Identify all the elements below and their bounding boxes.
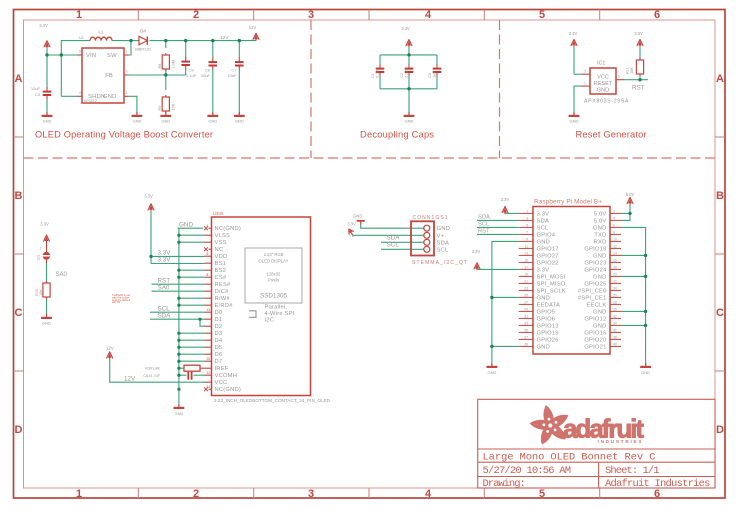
svg-text:CS#: CS# xyxy=(215,275,227,281)
svg-text:STEMMA_I2C_QT: STEMMA_I2C_QT xyxy=(412,260,467,266)
svg-text:3.3V: 3.3V xyxy=(40,221,49,226)
svg-text:D3: D3 xyxy=(215,331,223,337)
svg-text:9: 9 xyxy=(526,237,528,241)
svg-text:35: 35 xyxy=(524,328,528,332)
svg-text:3.3V: 3.3V xyxy=(634,31,643,36)
svg-text:3.3V: 3.3V xyxy=(39,23,48,28)
svg-text:R8: R8 xyxy=(158,64,162,69)
svg-text:Decoupling Caps: Decoupling Caps xyxy=(360,130,434,140)
svg-text:#SPI_CE0: #SPI_CE0 xyxy=(578,288,607,294)
svg-text:14: 14 xyxy=(613,251,617,255)
svg-text:15: 15 xyxy=(524,258,528,262)
svg-text:10K: 10K xyxy=(171,103,175,110)
svg-text:2.23_INCH_OLEDBOTTOM_CONTACT_2: 2.23_INCH_OLEDBOTTOM_CONTACT_24_PIN_OLED xyxy=(214,398,331,403)
svg-text:10uF: 10uF xyxy=(201,73,211,78)
svg-text:19: 19 xyxy=(524,272,528,276)
svg-text:GPIO16: GPIO16 xyxy=(584,330,606,336)
svg-text:1: 1 xyxy=(584,81,586,85)
svg-text:R11: R11 xyxy=(626,67,630,74)
svg-text:Large Mono OLED Bonnet Rev C: Large Mono OLED Bonnet Rev C xyxy=(483,451,656,463)
svg-text:D: D xyxy=(716,424,724,436)
svg-text:2: 2 xyxy=(126,91,128,95)
svg-text:38: 38 xyxy=(613,335,617,339)
svg-text:3.3V: 3.3V xyxy=(501,197,510,202)
svg-text:29: 29 xyxy=(524,307,528,311)
svg-text:adr 7D: adr 7D xyxy=(112,300,120,304)
svg-text:V+: V+ xyxy=(437,233,445,239)
svg-text:GND: GND xyxy=(641,370,650,375)
svg-text:10K: 10K xyxy=(630,67,634,74)
svg-text:U1: U1 xyxy=(79,36,84,40)
svg-text:B: B xyxy=(15,190,23,202)
svg-text:APX803S-29SA: APX803S-29SA xyxy=(584,99,629,105)
svg-text:R391.8K: R391.8K xyxy=(145,367,160,371)
svg-text:Raspberry Pi Model B+: Raspberry Pi Model B+ xyxy=(534,199,602,206)
svg-text:GPIO25: GPIO25 xyxy=(584,281,606,287)
svg-text:GND: GND xyxy=(537,239,550,245)
svg-text:SW: SW xyxy=(107,53,117,59)
svg-text:10: 10 xyxy=(613,237,617,241)
svg-text:0.1uF: 0.1uF xyxy=(375,68,379,78)
svg-text:OLED DISPLAY: OLED DISPLAY xyxy=(259,259,289,264)
svg-text:GPIO17: GPIO17 xyxy=(537,246,559,252)
svg-text:VSS: VSS xyxy=(215,240,227,246)
svg-text:VCOMH: VCOMH xyxy=(215,373,238,379)
svg-text:1: 1 xyxy=(207,224,209,228)
svg-text:24: 24 xyxy=(207,385,211,389)
svg-text:GPIO24: GPIO24 xyxy=(584,267,607,273)
svg-text:3.3V: 3.3V xyxy=(537,267,550,273)
svg-text:12V: 12V xyxy=(220,35,229,41)
svg-text:2: 2 xyxy=(618,75,620,79)
svg-text:A: A xyxy=(716,73,724,85)
svg-text:BS2: BS2 xyxy=(215,268,227,274)
svg-text:B: B xyxy=(716,190,724,202)
svg-text:C: C xyxy=(15,307,23,319)
svg-text:D4: D4 xyxy=(140,29,146,34)
svg-text:5: 5 xyxy=(207,252,209,256)
svg-text:1: 1 xyxy=(76,9,82,21)
svg-text:SDA: SDA xyxy=(437,240,450,246)
svg-text:SDA: SDA xyxy=(478,215,490,221)
svg-text:12V: 12V xyxy=(124,375,136,382)
svg-text:32: 32 xyxy=(613,314,617,318)
svg-text:40: 40 xyxy=(613,342,617,346)
svg-text:GPIO27: GPIO27 xyxy=(537,253,559,259)
svg-text:23: 23 xyxy=(524,286,528,290)
svg-text:1: 1 xyxy=(526,209,528,213)
svg-text:3.3V: 3.3V xyxy=(144,193,153,198)
svg-text:13: 13 xyxy=(207,308,211,312)
svg-text:Reset Generator: Reset Generator xyxy=(576,130,647,140)
svg-text:GND: GND xyxy=(179,221,193,228)
svg-text:GPIO13: GPIO13 xyxy=(537,323,559,329)
svg-text:2.2uF: 2.2uF xyxy=(404,68,408,78)
svg-text:D7: D7 xyxy=(215,359,223,365)
svg-text:21: 21 xyxy=(524,279,528,283)
svg-text:GND: GND xyxy=(537,295,550,301)
svg-text:GND: GND xyxy=(537,344,550,350)
svg-text:33: 33 xyxy=(524,321,528,325)
svg-text:C6: C6 xyxy=(205,68,211,73)
svg-text:GPIO12: GPIO12 xyxy=(584,316,606,322)
svg-text:I2C: I2C xyxy=(265,318,275,324)
svg-text:GND: GND xyxy=(570,119,579,124)
svg-text:R/W#: R/W# xyxy=(215,296,231,302)
svg-text:INDUSTRIES: INDUSTRIES xyxy=(598,439,643,444)
svg-text:28: 28 xyxy=(613,300,617,304)
svg-text:5.0V: 5.0V xyxy=(594,218,607,224)
svg-text:3: 3 xyxy=(584,70,586,74)
svg-text:SCL: SCL xyxy=(537,225,549,231)
svg-text:3.3V: 3.3V xyxy=(158,250,172,257)
svg-text:34: 34 xyxy=(613,321,617,325)
svg-text:24: 24 xyxy=(613,286,617,290)
svg-text:GPIO4: GPIO4 xyxy=(537,232,556,238)
svg-text:GND: GND xyxy=(593,253,606,259)
svg-text:5: 5 xyxy=(79,50,81,54)
svg-text:SA0: SA0 xyxy=(56,272,68,278)
svg-text:D1: D1 xyxy=(215,317,223,323)
svg-text:3: 3 xyxy=(308,9,314,21)
svg-text:1: 1 xyxy=(76,488,82,500)
svg-text:GPIO5: GPIO5 xyxy=(537,309,556,315)
svg-text:6: 6 xyxy=(613,223,615,227)
svg-text:Sheet: 1/1: Sheet: 1/1 xyxy=(605,465,660,477)
svg-text:D0: D0 xyxy=(215,310,223,316)
svg-text:6: 6 xyxy=(654,9,660,21)
svg-text:RST: RST xyxy=(478,229,490,235)
svg-text:L1: L1 xyxy=(98,30,104,35)
svg-text:4: 4 xyxy=(613,216,615,220)
svg-text:TXD: TXD xyxy=(594,232,606,238)
svg-text:IC1: IC1 xyxy=(597,61,605,67)
svg-text:MBR120: MBR120 xyxy=(135,47,151,52)
svg-text:SCL: SCL xyxy=(158,305,171,312)
svg-text:CONN1GS1: CONN1GS1 xyxy=(413,215,448,221)
svg-text:17: 17 xyxy=(524,265,528,269)
svg-text:3.3V: 3.3V xyxy=(569,31,578,36)
svg-text:RESET: RESET xyxy=(594,81,613,87)
svg-text:5: 5 xyxy=(539,9,545,21)
svg-text:13: 13 xyxy=(524,251,528,255)
svg-text:IREF: IREF xyxy=(215,366,229,372)
svg-text:GPIO22: GPIO22 xyxy=(537,260,559,266)
svg-text:GPIO21: GPIO21 xyxy=(584,344,606,350)
svg-text:27: 27 xyxy=(524,300,528,304)
svg-text:20: 20 xyxy=(207,357,211,361)
svg-text:GPIO19: GPIO19 xyxy=(537,330,559,336)
svg-text:SA0: SA0 xyxy=(158,284,170,291)
svg-text:2: 2 xyxy=(613,209,615,213)
svg-text:3.3V: 3.3V xyxy=(537,211,550,217)
svg-text:12: 12 xyxy=(613,244,617,248)
svg-text:18: 18 xyxy=(613,265,617,269)
svg-text:GND: GND xyxy=(487,370,496,375)
svg-text:GND: GND xyxy=(593,274,606,280)
svg-text:GND: GND xyxy=(353,214,362,219)
svg-text:GND: GND xyxy=(42,321,51,326)
svg-text:Pixels: Pixels xyxy=(268,278,279,283)
svg-text:SDA: SDA xyxy=(537,218,550,224)
svg-text:1.0M: 1.0M xyxy=(171,60,175,68)
svg-text:37: 37 xyxy=(524,335,528,339)
svg-text:GND: GND xyxy=(593,309,606,315)
svg-text:10uF: 10uF xyxy=(31,86,41,91)
svg-text:1uF: 1uF xyxy=(432,71,436,78)
svg-text:GPIO6: GPIO6 xyxy=(537,316,556,322)
svg-text:C9: C9 xyxy=(189,68,195,73)
svg-text:5.0V: 5.0V xyxy=(626,192,635,197)
svg-text:VDD: VDD xyxy=(215,254,228,260)
svg-text:GND: GND xyxy=(208,119,217,124)
svg-text:VCC: VCC xyxy=(215,380,228,386)
svg-text:GND: GND xyxy=(593,225,606,231)
svg-text:2: 2 xyxy=(193,488,199,500)
svg-text:GND: GND xyxy=(597,88,609,94)
svg-text:2.23" RGB: 2.23" RGB xyxy=(264,252,284,257)
svg-text:11: 11 xyxy=(524,244,528,248)
svg-text:5: 5 xyxy=(539,488,545,500)
svg-text:SPI_SCLK: SPI_SCLK xyxy=(537,288,566,294)
svg-text:NC: NC xyxy=(215,247,224,253)
svg-text:0.1uF: 0.1uF xyxy=(186,73,197,78)
svg-text:RXD: RXD xyxy=(594,239,607,245)
svg-text:39: 39 xyxy=(524,342,528,346)
svg-text:SPI_MISO: SPI_MISO xyxy=(537,281,566,287)
svg-text:RST: RST xyxy=(632,85,645,92)
svg-text:GPIO23: GPIO23 xyxy=(584,260,606,266)
svg-text:GND: GND xyxy=(235,119,244,124)
svg-text:GPIO18: GPIO18 xyxy=(584,246,606,252)
svg-text:Drawing:: Drawing: xyxy=(483,478,526,490)
svg-text:SCL: SCL xyxy=(387,242,400,249)
svg-text:SDA: SDA xyxy=(158,312,172,319)
svg-text:1: 1 xyxy=(126,50,128,54)
svg-text:C4: C4 xyxy=(35,92,41,97)
svg-text:3.3V: 3.3V xyxy=(472,249,481,254)
svg-text:2: 2 xyxy=(40,247,42,251)
svg-text:#SPI_CE1: #SPI_CE1 xyxy=(578,295,607,301)
svg-text:SSD1305: SSD1305 xyxy=(260,293,287,300)
svg-text:12V: 12V xyxy=(106,345,114,350)
svg-text:SDA: SDA xyxy=(387,235,401,242)
svg-text:SCL: SCL xyxy=(478,222,490,228)
svg-text:OLED Operating Voltage Boost C: OLED Operating Voltage Boost Converter xyxy=(35,130,213,140)
svg-text:20: 20 xyxy=(613,272,617,276)
svg-text:2: 2 xyxy=(193,9,199,21)
svg-text:22: 22 xyxy=(613,279,617,283)
svg-text:SJ1: SJ1 xyxy=(37,255,41,261)
svg-text:D4: D4 xyxy=(215,338,223,344)
svg-text:3.3V: 3.3V xyxy=(401,26,410,31)
svg-text:C3: C3 xyxy=(428,73,432,78)
svg-text:RST: RST xyxy=(158,277,171,284)
svg-text:10K: 10K xyxy=(39,289,43,296)
svg-text:D: D xyxy=(15,424,23,436)
svg-text:GND: GND xyxy=(161,119,170,124)
svg-text:Parallel,: Parallel, xyxy=(265,305,288,311)
svg-text:22: 22 xyxy=(207,371,211,375)
svg-text:SPI_MOSI: SPI_MOSI xyxy=(537,274,566,280)
svg-text:10uF: 10uF xyxy=(227,73,237,78)
svg-text:8: 8 xyxy=(207,273,209,277)
svg-text:RES#: RES# xyxy=(215,282,232,288)
svg-text:4: 4 xyxy=(425,9,432,21)
svg-text:GND: GND xyxy=(593,323,606,329)
svg-text:30: 30 xyxy=(613,307,617,311)
svg-text:VIN: VIN xyxy=(86,53,96,59)
svg-text:3: 3 xyxy=(526,216,528,220)
svg-text:12V: 12V xyxy=(249,25,257,30)
svg-text:U$35: U$35 xyxy=(213,211,224,216)
svg-text:D/C#: D/C# xyxy=(215,289,230,295)
svg-text:10uH: 10uH xyxy=(96,46,106,51)
svg-text:E/RD#: E/RD# xyxy=(215,303,234,309)
svg-text:7: 7 xyxy=(526,230,528,234)
svg-text:4: 4 xyxy=(79,91,81,95)
svg-text:4-Wire SPI: 4-Wire SPI xyxy=(265,311,295,317)
svg-text:GND: GND xyxy=(174,411,183,416)
svg-text:GPIO26: GPIO26 xyxy=(537,337,559,343)
svg-text:C614.7uF: C614.7uF xyxy=(143,374,160,378)
svg-text:NC(GND): NC(GND) xyxy=(215,226,242,232)
svg-text:EEDATA: EEDATA xyxy=(537,302,561,308)
svg-text:EECLK: EECLK xyxy=(586,302,606,308)
svg-text:GND: GND xyxy=(43,119,52,124)
svg-text:3.3V: 3.3V xyxy=(158,257,172,264)
svg-text:SCL: SCL xyxy=(437,247,449,253)
svg-text:D5: D5 xyxy=(215,345,223,351)
svg-text:D2: D2 xyxy=(215,324,223,330)
svg-text:5.0V: 5.0V xyxy=(594,211,607,217)
svg-text:26: 26 xyxy=(613,293,617,297)
svg-text:AP3012: AP3012 xyxy=(84,99,97,103)
svg-text:3: 3 xyxy=(308,488,314,500)
svg-text:C7: C7 xyxy=(231,68,237,73)
svg-text:GND: GND xyxy=(132,119,141,124)
svg-text:FB: FB xyxy=(105,73,113,79)
svg-text:Adafruit Industries: Adafruit Industries xyxy=(605,478,710,490)
svg-text:25: 25 xyxy=(524,293,528,297)
svg-text:GND: GND xyxy=(405,119,414,124)
svg-text:C1: C1 xyxy=(371,73,375,78)
svg-text:3.3V: 3.3V xyxy=(347,222,356,227)
svg-text:R9: R9 xyxy=(158,106,162,111)
svg-text:128x32: 128x32 xyxy=(267,272,281,277)
svg-text:5: 5 xyxy=(526,223,528,227)
svg-text:NC(GND): NC(GND) xyxy=(215,387,242,393)
svg-text:VLSS: VLSS xyxy=(215,233,231,239)
svg-text:GND: GND xyxy=(103,94,116,100)
svg-text:C2: C2 xyxy=(400,73,404,78)
svg-text:D6: D6 xyxy=(215,352,223,358)
svg-text:A: A xyxy=(15,73,23,85)
svg-text:8: 8 xyxy=(613,230,615,234)
svg-text:3: 3 xyxy=(126,70,128,74)
svg-text:VCC: VCC xyxy=(597,75,609,81)
svg-text:16: 16 xyxy=(613,258,617,262)
svg-text:5/27/20 10:56 AM: 5/27/20 10:56 AM xyxy=(483,465,572,477)
svg-text:GND: GND xyxy=(437,226,450,232)
svg-text:4: 4 xyxy=(425,488,432,500)
svg-text:BS1: BS1 xyxy=(215,261,227,267)
svg-text:31: 31 xyxy=(524,314,528,318)
svg-text:36: 36 xyxy=(613,328,617,332)
svg-text:C: C xyxy=(716,307,724,319)
svg-text:GPIO20: GPIO20 xyxy=(584,337,606,343)
